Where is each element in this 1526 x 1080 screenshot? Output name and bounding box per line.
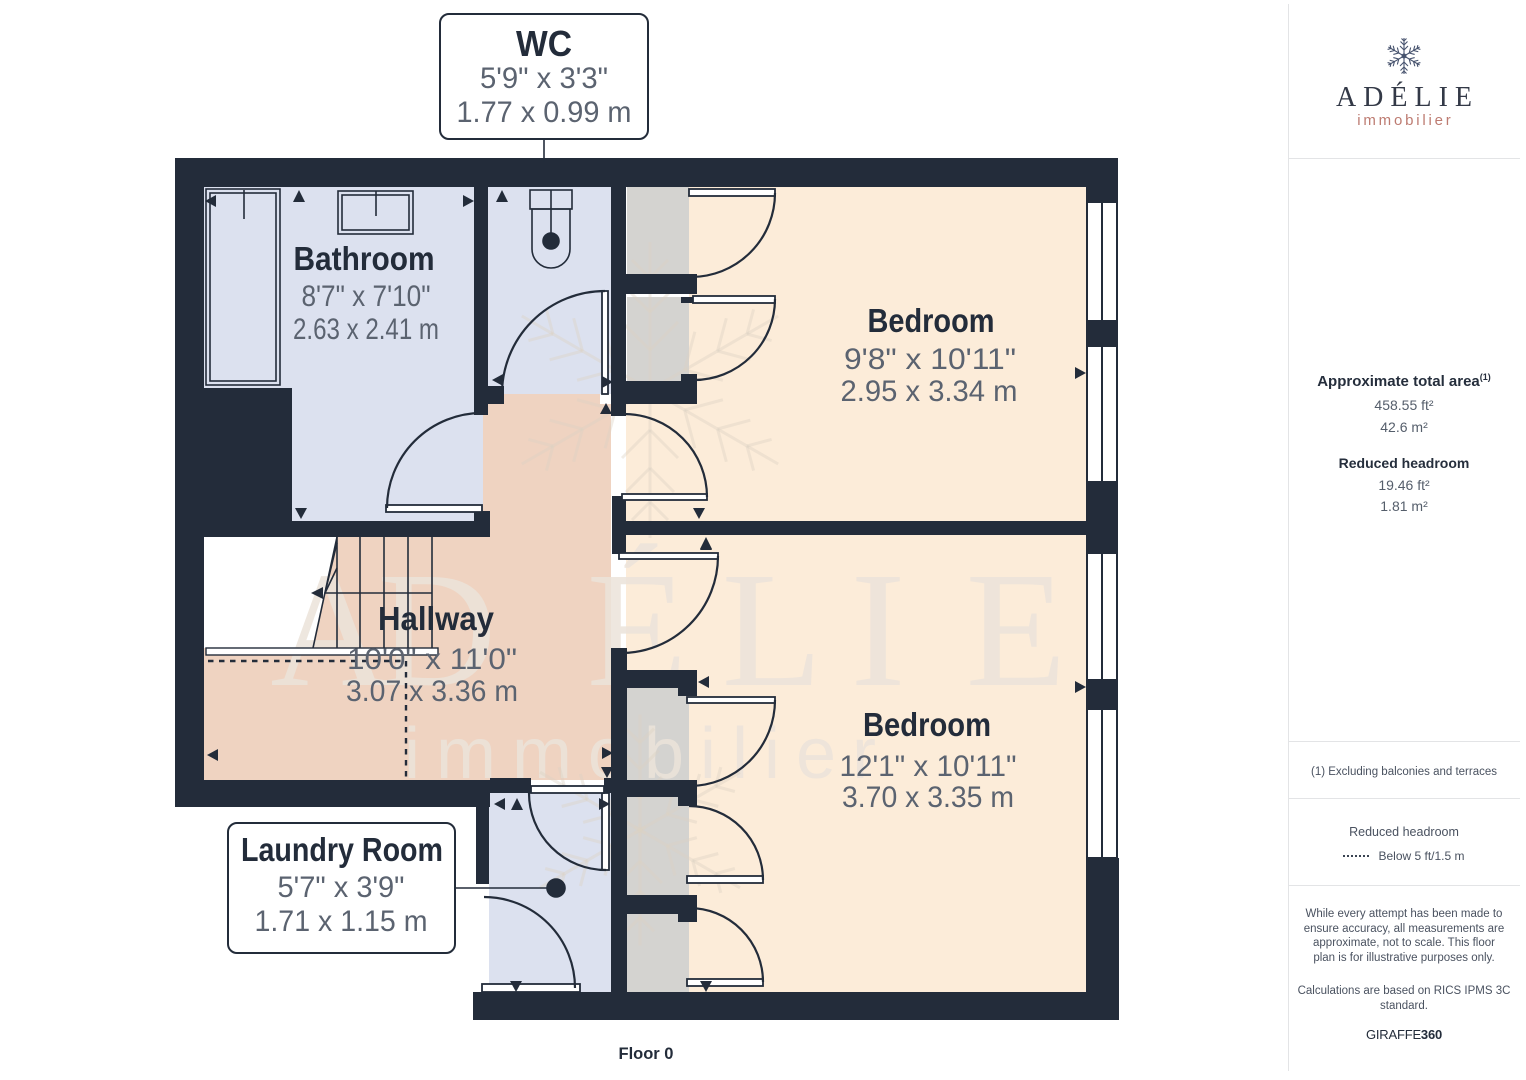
- svg-text:Floor 0: Floor 0: [618, 1045, 673, 1063]
- svg-text:Bathroom: Bathroom: [294, 240, 435, 277]
- svg-text:10'0" x 11'0": 10'0" x 11'0": [347, 643, 517, 676]
- svg-text:E: E: [966, 538, 1067, 721]
- svg-text:Laundry Room: Laundry Room: [241, 831, 443, 868]
- svg-text:2.63 x 2.41 m: 2.63 x 2.41 m: [293, 313, 439, 346]
- svg-text:2.95 x 3.34 m: 2.95 x 3.34 m: [841, 375, 1018, 408]
- svg-text:1.71 x 1.15 m: 1.71 x 1.15 m: [255, 905, 428, 938]
- svg-text:3.07 x 3.36 m: 3.07 x 3.36 m: [346, 675, 518, 708]
- svg-text:WC: WC: [516, 23, 572, 64]
- svg-text:Hallway: Hallway: [378, 600, 495, 637]
- svg-text:5'9" x 3'3": 5'9" x 3'3": [480, 62, 608, 95]
- svg-text:5'7" x 3'9": 5'7" x 3'9": [278, 871, 405, 904]
- svg-text:I: I: [851, 538, 906, 721]
- svg-text:1.77 x 0.99 m: 1.77 x 0.99 m: [457, 96, 632, 129]
- svg-text:L: L: [722, 538, 823, 721]
- svg-text:Bedroom: Bedroom: [868, 302, 995, 339]
- svg-text:12'1" x 10'11": 12'1" x 10'11": [840, 750, 1017, 783]
- svg-text:É: É: [587, 538, 688, 721]
- svg-text:3.70 x 3.35 m: 3.70 x 3.35 m: [842, 781, 1014, 814]
- svg-text:Bedroom: Bedroom: [863, 706, 991, 743]
- svg-text:8'7" x 7'10": 8'7" x 7'10": [302, 280, 431, 313]
- svg-text:9'8" x 10'11": 9'8" x 10'11": [844, 343, 1016, 376]
